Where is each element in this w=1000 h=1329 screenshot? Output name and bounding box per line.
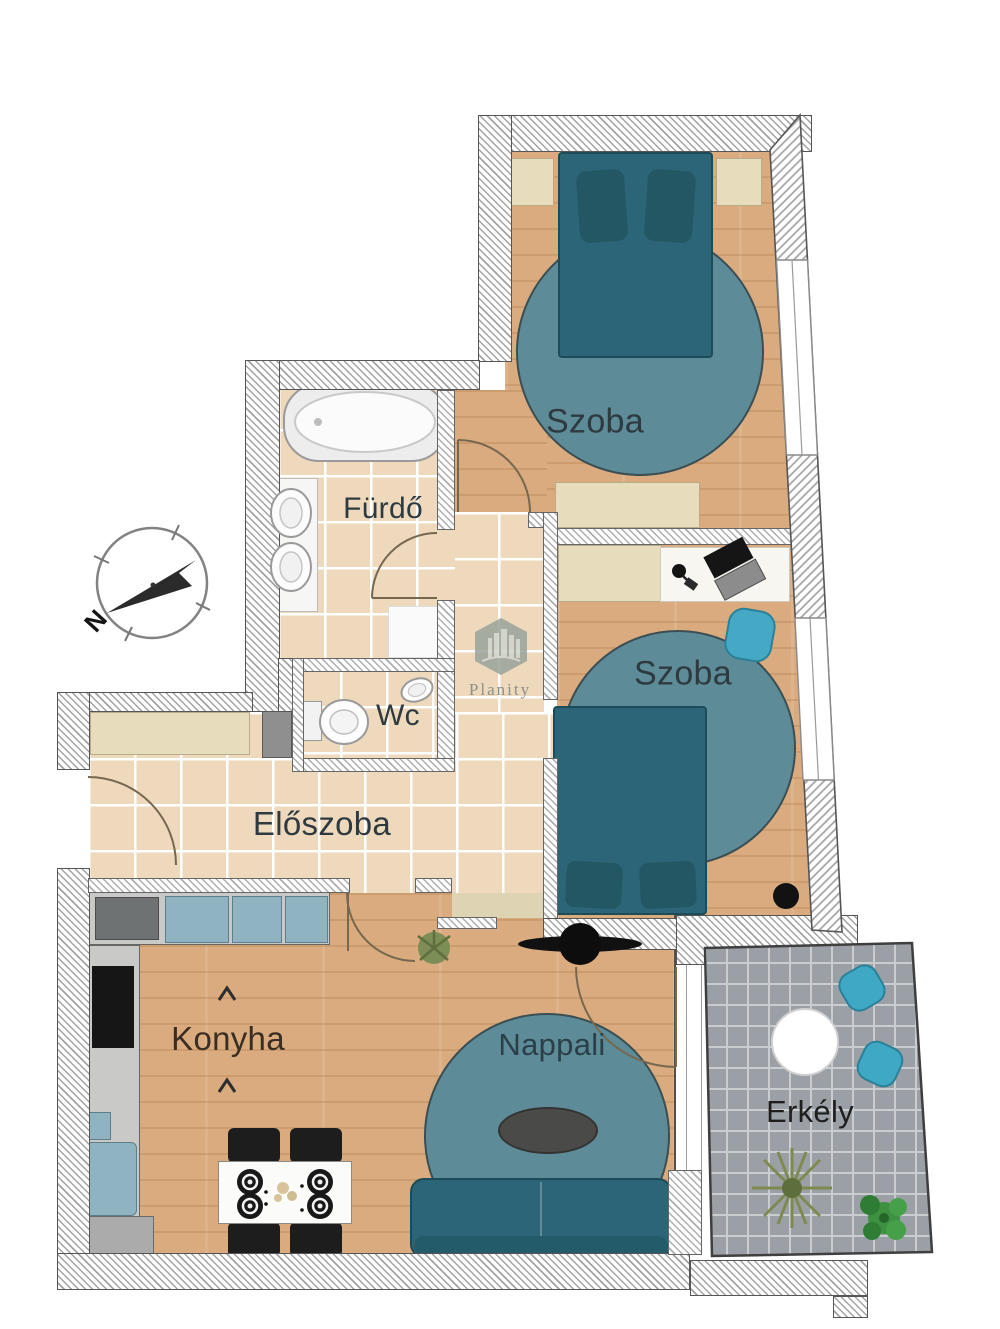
shoe-cabinet xyxy=(90,712,250,755)
wall xyxy=(478,115,812,152)
wall xyxy=(478,115,512,362)
watermark-text: Planity xyxy=(469,680,531,700)
wall xyxy=(833,1296,868,1318)
szoba2-wardrobe xyxy=(558,545,662,602)
dining-chair xyxy=(290,1222,342,1257)
shower-mat xyxy=(388,606,440,658)
oven xyxy=(92,966,134,1048)
szoba1-nightstand-right xyxy=(716,158,762,206)
kitchen-cabinet xyxy=(165,896,229,943)
wall xyxy=(543,512,558,700)
wall xyxy=(437,917,497,929)
room-label-furdo: Fürdő xyxy=(343,492,423,526)
szoba2-desk xyxy=(660,547,790,602)
kitchen-cabinet xyxy=(232,896,282,943)
room-label-szoba1: Szoba xyxy=(546,403,644,442)
wall xyxy=(245,360,280,712)
wall xyxy=(57,868,90,1290)
wall xyxy=(543,758,558,920)
wall xyxy=(690,1260,868,1296)
wall xyxy=(437,390,455,530)
wall xyxy=(415,878,452,893)
room-label-wc: Wc xyxy=(376,699,420,733)
room-label-eloszoba: Előszoba xyxy=(253,805,391,843)
szoba1-pillow xyxy=(644,168,697,243)
compass-north-label: N xyxy=(78,604,114,639)
room-label-nappali: Nappali xyxy=(498,1027,605,1063)
coffee-table xyxy=(498,1107,598,1154)
balcony-door-window xyxy=(686,963,702,1172)
dining-chair xyxy=(228,1222,280,1257)
room-label-erkely: Erkély xyxy=(766,1094,854,1130)
wall xyxy=(545,528,800,545)
vestibule-mat xyxy=(452,893,543,918)
szoba2-pillow xyxy=(565,861,623,910)
wall xyxy=(88,878,350,893)
dining-table xyxy=(218,1161,352,1224)
wall xyxy=(292,658,455,672)
szoba2-pillow xyxy=(639,861,697,910)
floor-plan: Szoba Szoba Fürdő Wc Előszoba Konyha Nap… xyxy=(0,0,1000,1329)
wall xyxy=(292,658,304,772)
wall xyxy=(292,758,455,772)
szoba1-pillow xyxy=(576,168,629,243)
szoba1-nightstand-left xyxy=(510,158,554,206)
washing-machine xyxy=(82,1216,154,1256)
wall xyxy=(57,692,90,770)
kitchen-cabinet-small xyxy=(87,1112,111,1140)
dining-chair xyxy=(290,1128,342,1163)
room-label-konyha: Konyha xyxy=(171,1020,285,1058)
kitchen-appliance xyxy=(95,897,159,940)
wall xyxy=(437,600,455,660)
sofa-seam xyxy=(540,1182,542,1236)
wall xyxy=(543,918,678,950)
szoba1-dresser xyxy=(555,482,700,528)
bathtub xyxy=(283,383,448,462)
wall xyxy=(245,360,480,390)
kitchen-cabinet xyxy=(285,896,328,943)
wall xyxy=(668,1170,702,1255)
wall xyxy=(57,1253,690,1290)
dining-chair xyxy=(228,1128,280,1163)
fridge xyxy=(85,1142,137,1216)
room-label-szoba2: Szoba xyxy=(634,655,732,694)
wall xyxy=(437,660,455,772)
